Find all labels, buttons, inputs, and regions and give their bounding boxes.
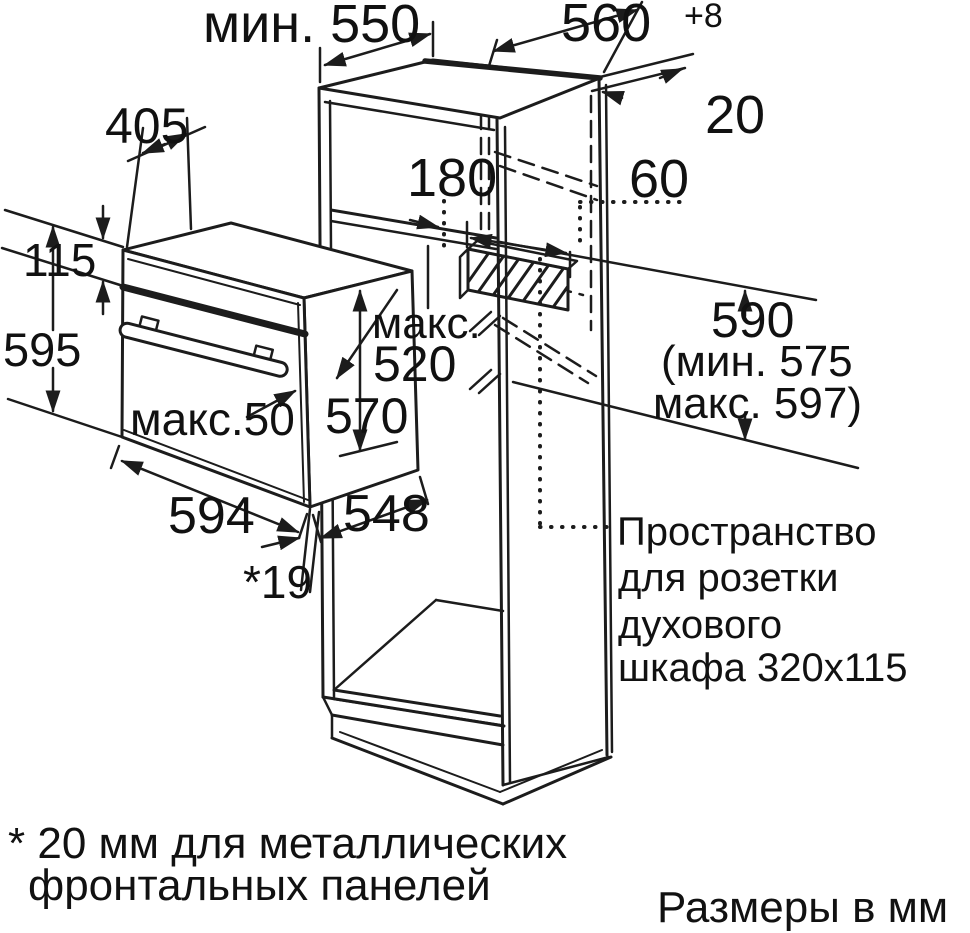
label-casing-height: 570 <box>325 388 408 444</box>
label-pullout-depth: 405 <box>105 98 188 154</box>
label-oven-width: 594 <box>168 487 255 545</box>
label-rear-panel-gap: 20 <box>705 85 765 145</box>
socket-note-line1: Пространство <box>617 510 877 554</box>
socket-note-line2: для розетки <box>618 556 838 600</box>
cabinet-top-face <box>319 60 600 118</box>
socket-note-line4: шкафа 320x115 <box>618 646 908 690</box>
socket-note-line3: духового <box>618 603 782 647</box>
units-note: Размеры в мм <box>657 883 948 932</box>
label-casing-depth: 548 <box>343 485 430 543</box>
label-vent-offset: 60 <box>629 149 689 209</box>
footnote: * 20 мм для металлических фронтальных па… <box>8 819 567 910</box>
label-max-casing-depth: 520 <box>373 336 456 392</box>
label-niche-width: 560 <box>561 0 651 53</box>
footnote-line2: фронтальных панелей <box>28 861 491 910</box>
label-niche-depth-min: мин. 550 <box>203 0 420 54</box>
socket-note: Пространство для розетки духового шкафа … <box>617 510 908 690</box>
label-top-clearance: 180 <box>407 148 497 208</box>
oven-installation-diagram-page: мин. 550 560 +8 20 405 180 60 115 595 ма… <box>0 0 970 933</box>
label-door-protrusion: макс.50 <box>130 393 295 445</box>
label-niche-height-max: макс. 597) <box>653 379 862 428</box>
label-fascia-height: 115 <box>23 234 96 286</box>
label-niche-width-tolerance: +8 <box>684 0 723 35</box>
installation-diagram: мин. 550 560 +8 20 405 180 60 115 595 ма… <box>0 0 970 933</box>
label-front-gap: *19 <box>243 556 312 608</box>
label-front-height: 595 <box>3 323 81 376</box>
